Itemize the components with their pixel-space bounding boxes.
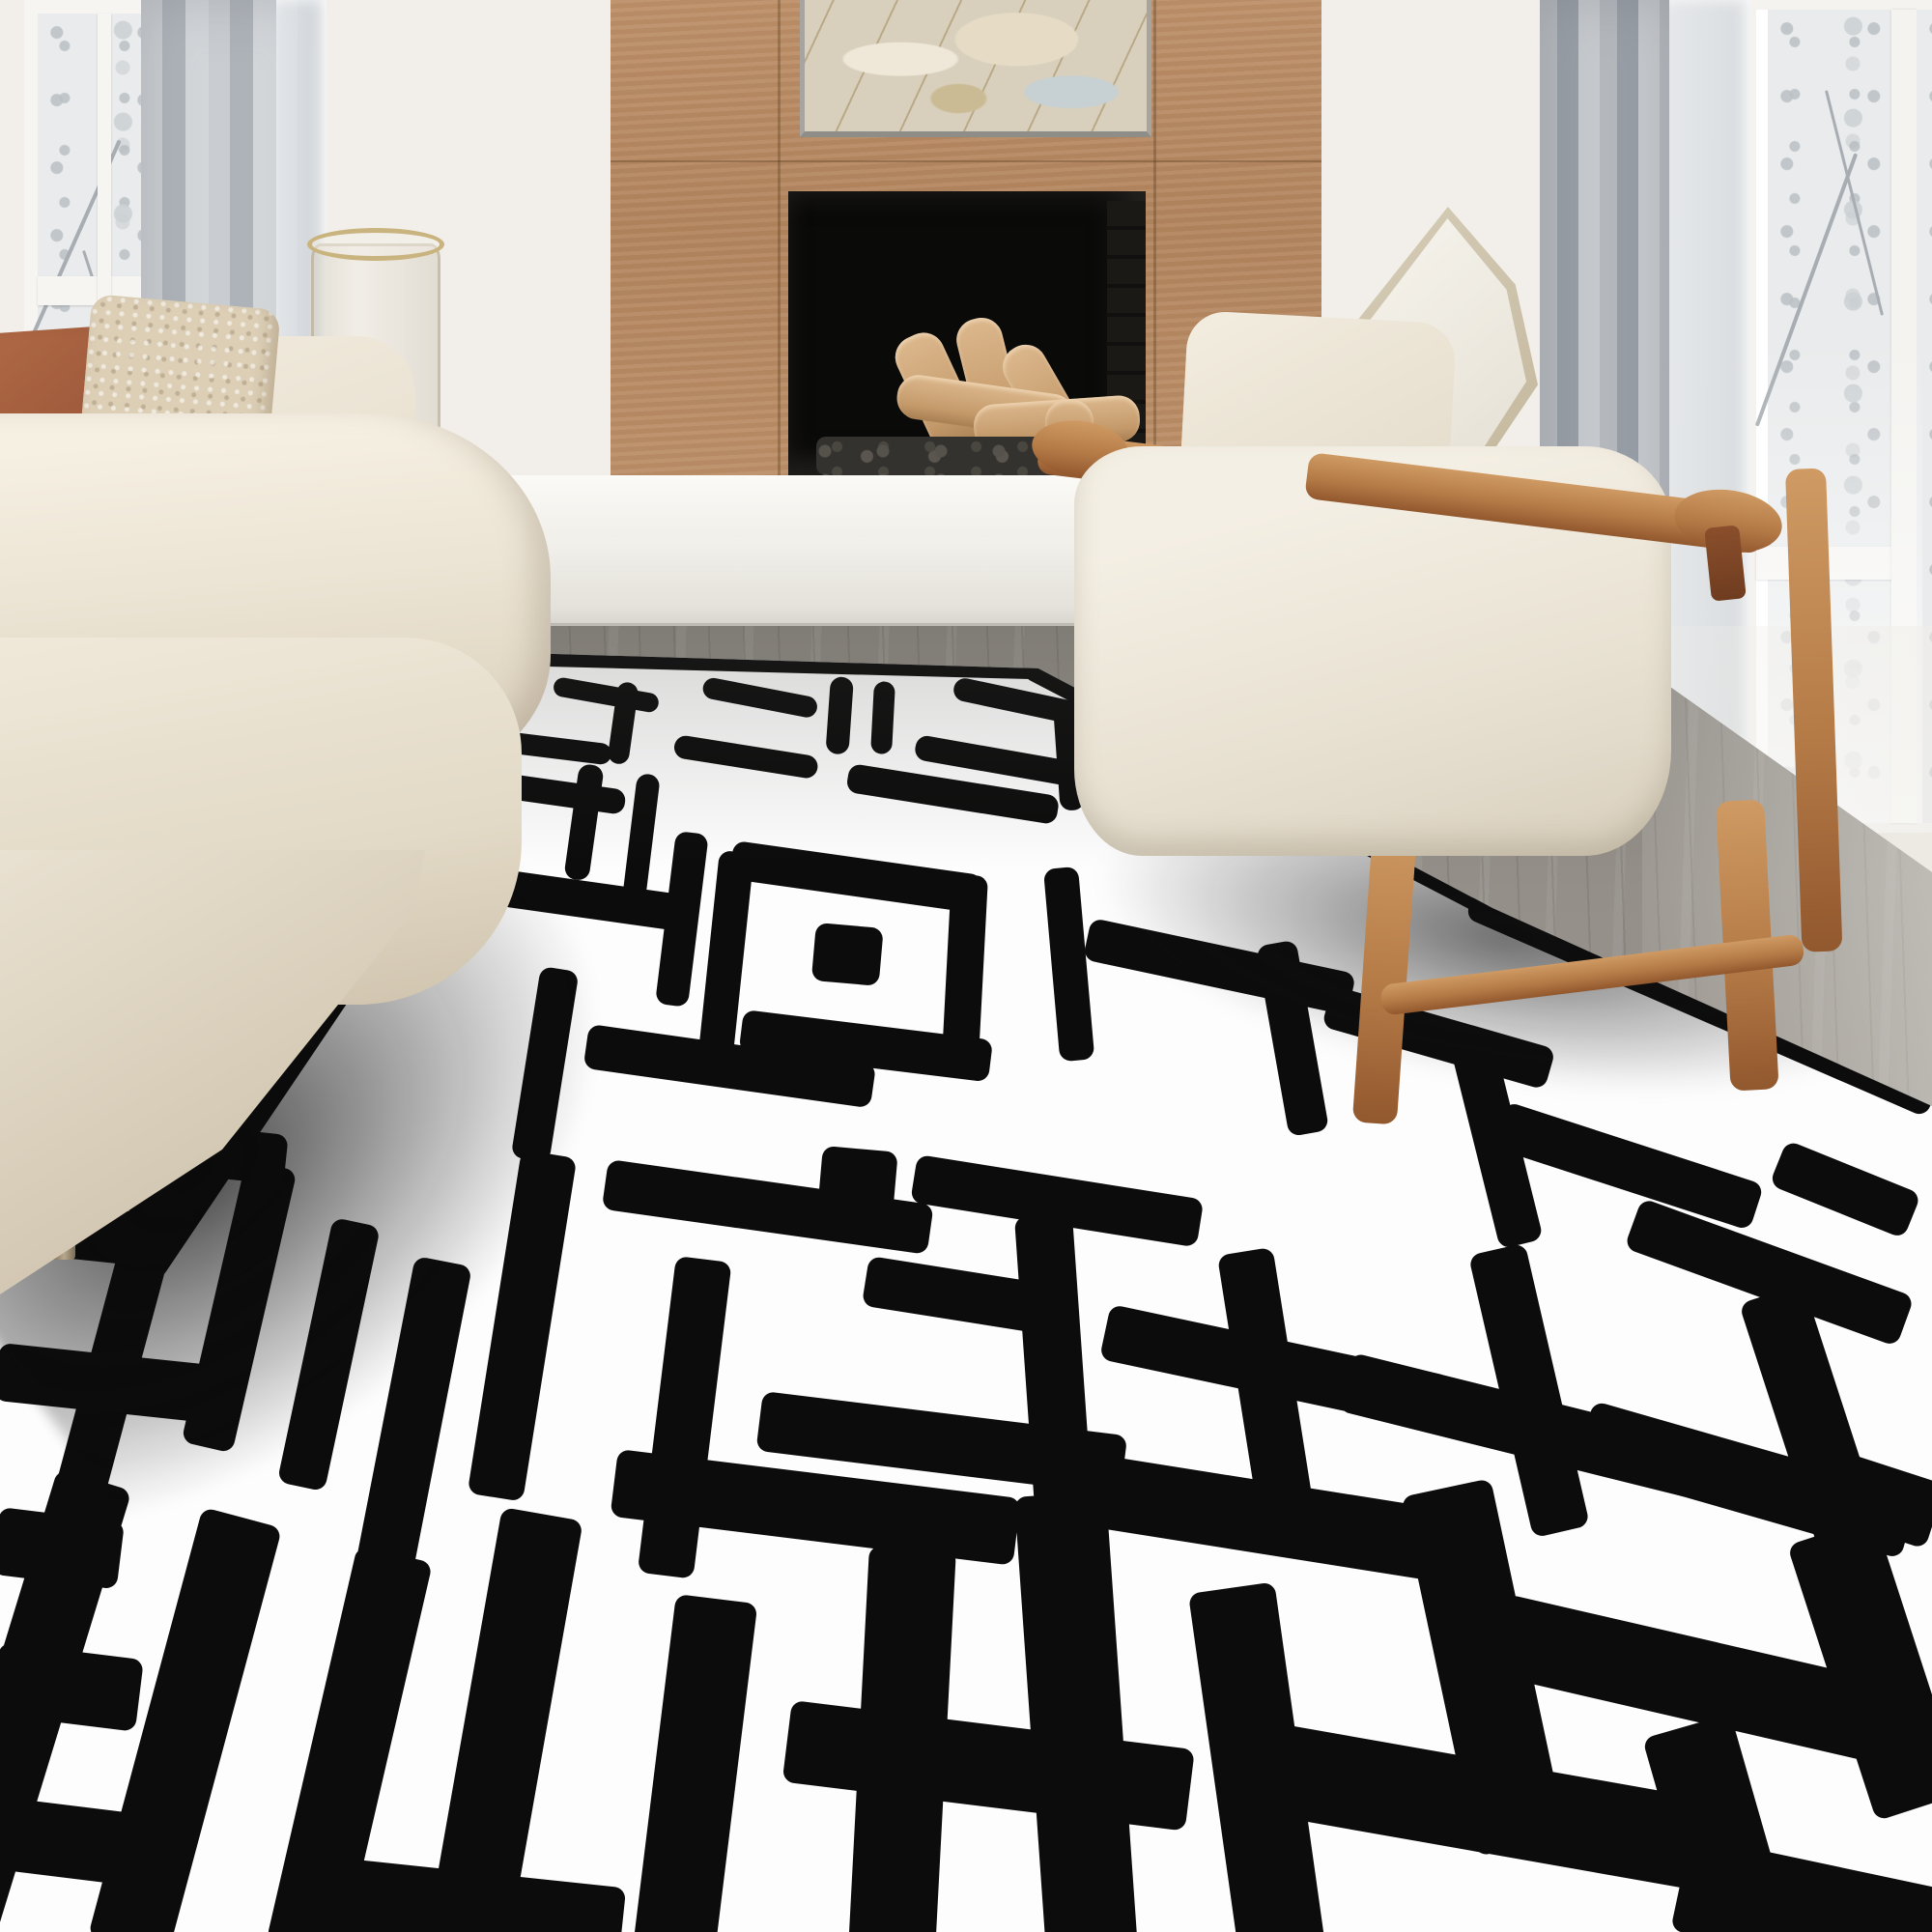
rug-bar (818, 1146, 898, 1212)
rug-bar (633, 1594, 757, 1932)
fireplace-panel-seam (1153, 0, 1156, 502)
rug-bar (638, 1256, 732, 1579)
living-room-photo (0, 0, 1932, 1932)
rug-bar (1014, 1491, 1138, 1932)
rug-bar (425, 1507, 583, 1932)
rug-bar (1670, 1835, 1932, 1932)
vase-gold-rim (307, 228, 444, 261)
rug-bar (1769, 1140, 1921, 1239)
rug-bar (782, 1700, 1195, 1832)
abstract-artwork (800, 0, 1151, 137)
rug-bar (811, 923, 884, 986)
fireplace-panel-seam (611, 160, 1321, 162)
rug-bar (1043, 867, 1094, 1062)
rug-bar (848, 1546, 956, 1932)
fireplace-panel-seam (778, 0, 781, 502)
